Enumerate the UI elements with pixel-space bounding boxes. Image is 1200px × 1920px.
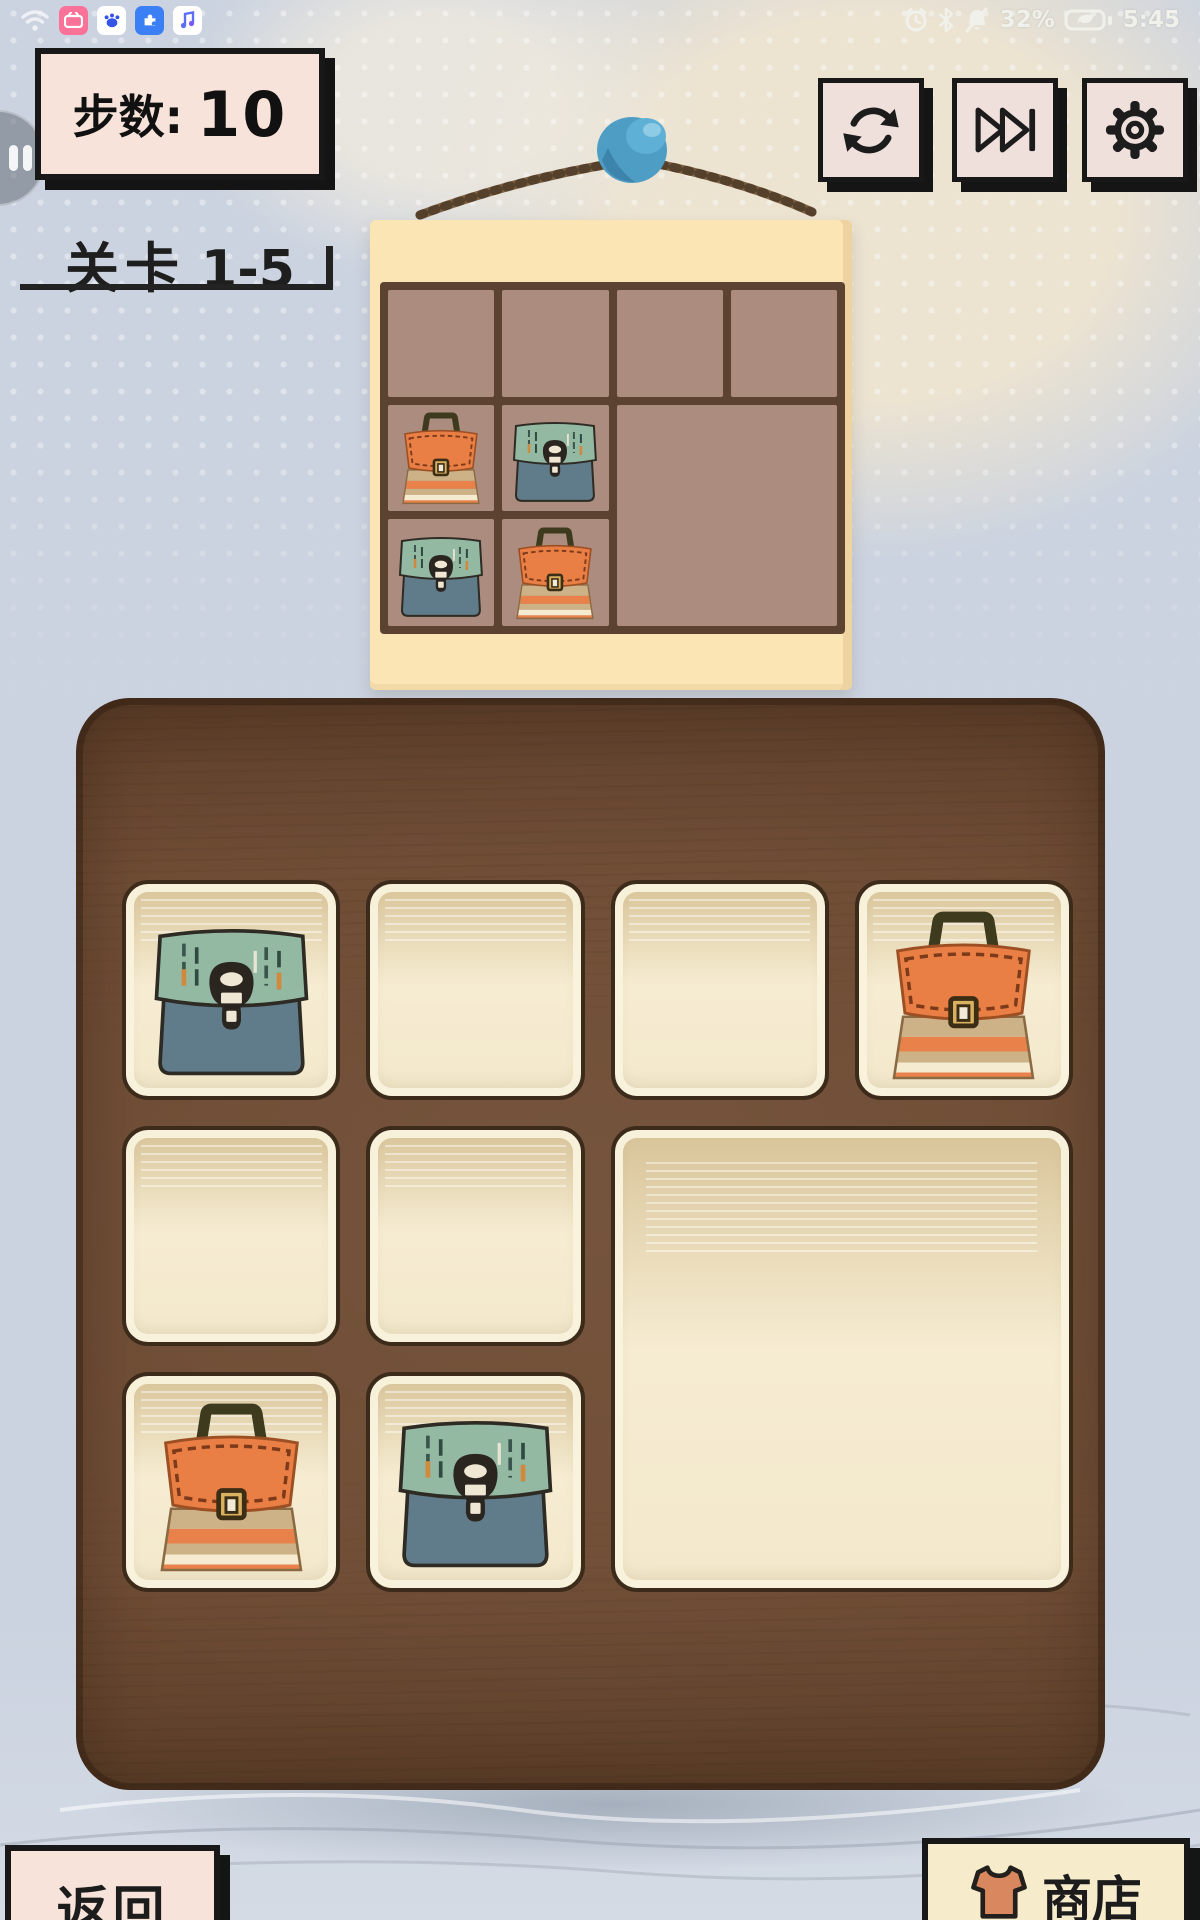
- skip-level-button[interactable]: [952, 78, 1058, 182]
- status-bar: 32% 5:45: [0, 0, 1200, 40]
- hanging-rope: [380, 100, 840, 230]
- level-underline-tick: [326, 246, 333, 290]
- ref-cell-r2c1: [388, 405, 494, 512]
- settings-button[interactable]: [1082, 78, 1188, 182]
- reference-board: [370, 220, 852, 690]
- shop-button-label: 商店: [1042, 1860, 1142, 1920]
- music-app-icon: [173, 6, 202, 35]
- steps-value: 10: [197, 78, 287, 151]
- restart-icon: [838, 97, 904, 163]
- clock-time: 5:45: [1123, 7, 1180, 33]
- orange-bag[interactable]: [872, 907, 1055, 1090]
- level-underline: [20, 284, 332, 290]
- ref-cell-r1c1: [388, 290, 494, 397]
- puzzle-board: [76, 698, 1105, 1790]
- paw-app-icon: [97, 6, 126, 35]
- skip-level-icon: [973, 101, 1037, 159]
- shop-button[interactable]: 商店: [922, 1838, 1190, 1920]
- ref-cell-r2c2: [502, 405, 608, 512]
- shirt-icon: [970, 1864, 1028, 1920]
- back-button-label: 返回: [56, 1869, 168, 1920]
- board-cell-r1c4[interactable]: [855, 880, 1073, 1100]
- level-value: 1-5: [201, 240, 295, 300]
- orange-bag[interactable]: [140, 1399, 323, 1582]
- green-bag[interactable]: [391, 525, 491, 625]
- level-indicator: 关卡 1-5: [20, 224, 340, 303]
- green-bag[interactable]: [140, 907, 323, 1090]
- board-cell-r1c1[interactable]: [122, 880, 340, 1100]
- game-screen: 32% 5:45 步数: 10 关卡 1-5: [0, 0, 1200, 1920]
- wifi-icon: [20, 7, 50, 33]
- ref-cell-r1c4: [731, 290, 837, 397]
- battery-saver-icon: [1064, 7, 1114, 33]
- reference-grid: [380, 282, 845, 634]
- bluetooth-icon: [938, 7, 954, 33]
- push-pin-icon: [597, 117, 667, 183]
- alarm-icon: [903, 7, 929, 33]
- orange-bag[interactable]: [505, 525, 605, 625]
- ref-cell-r3c1: [388, 519, 494, 626]
- assist-bar-icon: [9, 145, 18, 171]
- puzzle-grid: [122, 880, 1073, 1592]
- steps-label: 步数:: [73, 81, 183, 147]
- board-cell-r2c1[interactable]: [122, 1126, 340, 1346]
- board-cell-r1c3[interactable]: [611, 880, 829, 1100]
- assist-bar-icon: [23, 145, 32, 171]
- mute-bell-icon: [963, 7, 991, 33]
- level-label: 关卡: [65, 224, 185, 303]
- ref-cell-r1c2: [502, 290, 608, 397]
- puzzle-app-icon: [135, 6, 164, 35]
- board-cell-r2c3-large[interactable]: [611, 1126, 1074, 1592]
- board-cell-r1c2[interactable]: [366, 880, 584, 1100]
- back-button[interactable]: 返回: [5, 1845, 220, 1920]
- green-bag[interactable]: [505, 410, 605, 510]
- video-app-icon: [59, 6, 88, 35]
- ref-cell-r2c3-large: [617, 405, 838, 626]
- ref-cell-r1c3: [617, 290, 723, 397]
- board-cell-r3c1[interactable]: [122, 1372, 340, 1592]
- orange-bag[interactable]: [391, 410, 491, 510]
- green-bag[interactable]: [384, 1399, 567, 1582]
- battery-percent: 32%: [1000, 7, 1055, 33]
- ref-cell-r3c2: [502, 519, 608, 626]
- steps-counter: 步数: 10: [35, 48, 325, 180]
- board-cell-r2c2[interactable]: [366, 1126, 584, 1346]
- settings-gear-icon: [1102, 97, 1168, 163]
- board-cell-r3c2[interactable]: [366, 1372, 584, 1592]
